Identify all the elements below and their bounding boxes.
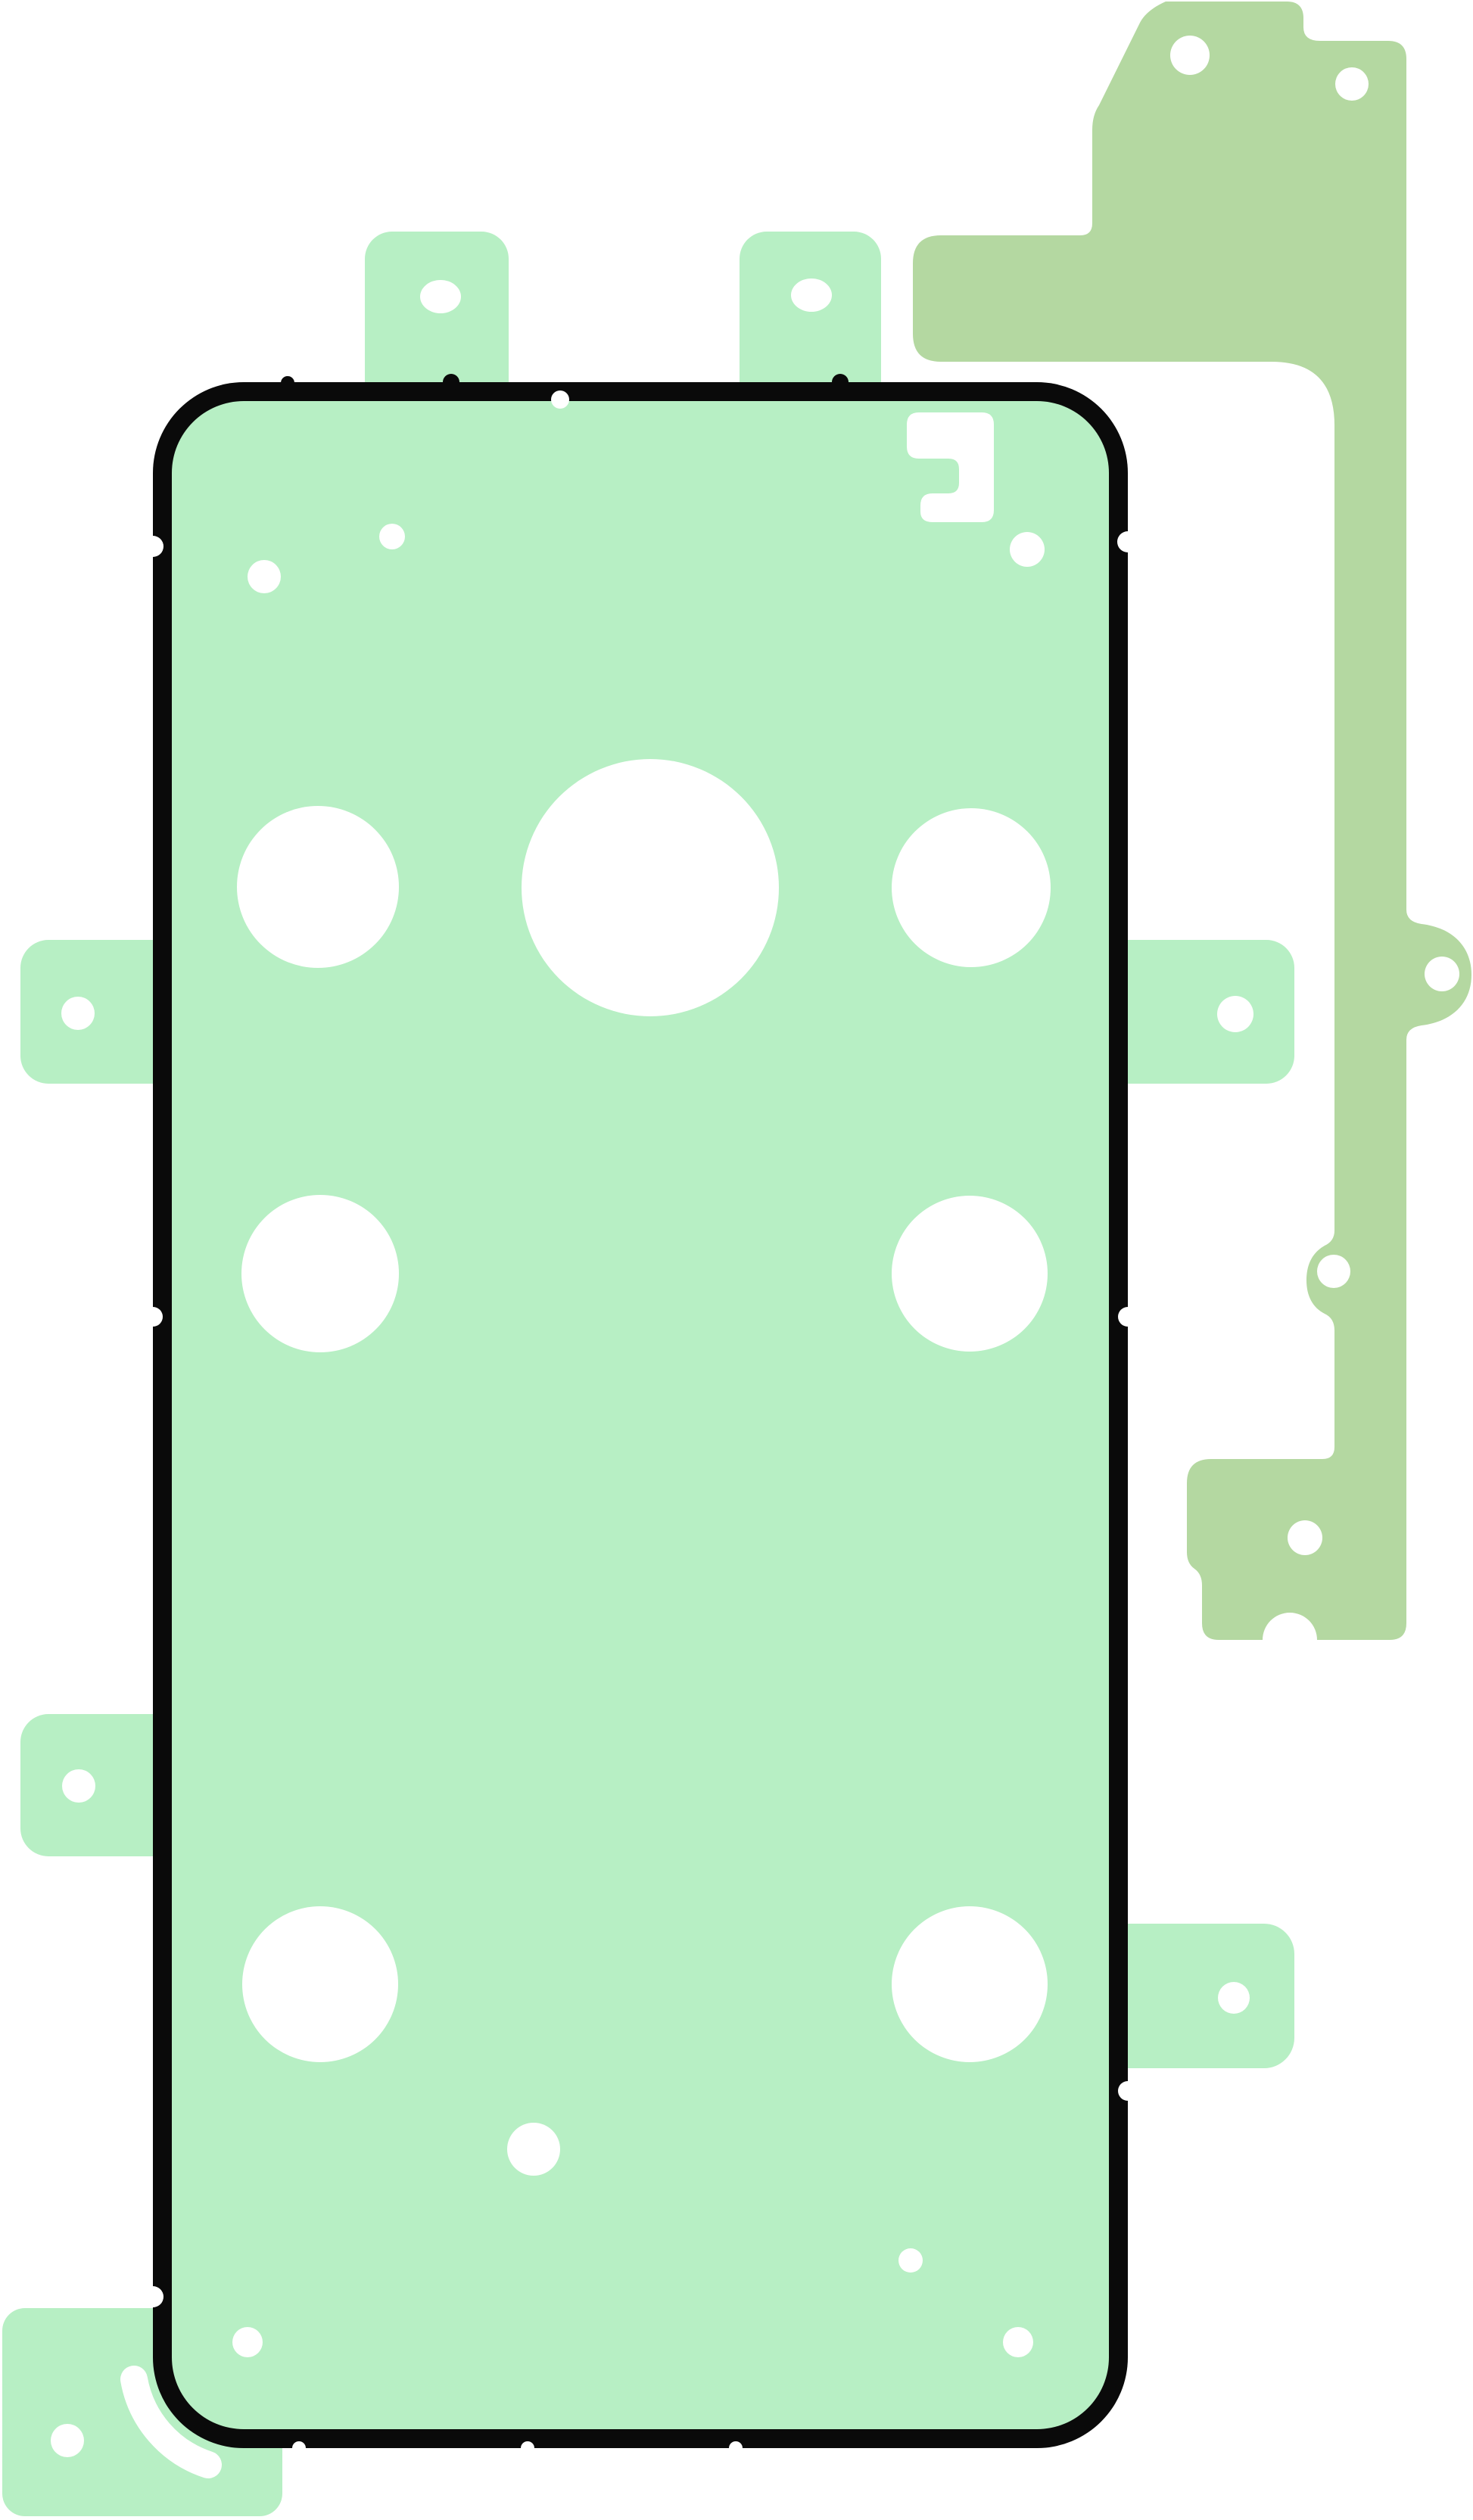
pull-tab-left-upper-hole (61, 997, 95, 1030)
screw-hole-cutout (248, 560, 281, 593)
strip-screw-hole (1317, 1255, 1350, 1288)
outline-bump (832, 374, 849, 390)
strip-screw-hole (1170, 36, 1210, 75)
outline-notch (1118, 2081, 1138, 2101)
backcover-adhesive-gasket-group (142, 374, 1138, 2455)
pull-tab-right-lower-hole (1218, 1982, 1250, 2014)
pull-tab-top-right-hole (791, 278, 832, 312)
screw-hole-cutout (379, 524, 405, 549)
outline-notch (551, 390, 569, 409)
pull-tab-right-upper-hole (1217, 996, 1253, 1032)
adhesive-sticker-product-image (0, 0, 1473, 2520)
camera-cutout (242, 1906, 398, 2062)
camera-cutout (522, 759, 779, 1016)
screw-hole-cutout (1003, 2327, 1033, 2357)
outline-bump (281, 376, 294, 390)
outline-notch (143, 1307, 163, 1327)
backcover-adhesive-gasket-body (172, 401, 1109, 2429)
pull-tab-left-lower-hole (62, 1769, 95, 1803)
outline-notch (521, 2441, 534, 2455)
camera-cutout (892, 808, 1051, 967)
camera-cutout (892, 1906, 1048, 2062)
corner-patch-hole (51, 2424, 84, 2457)
camera-cutout (237, 806, 399, 968)
camera-cutout (241, 1195, 399, 1352)
strip-screw-hole (1425, 957, 1459, 991)
screw-hole-cutout (232, 2327, 263, 2357)
outline-bump (443, 374, 459, 390)
camera-cutout (892, 1196, 1048, 1352)
outline-notch (1117, 531, 1138, 552)
screw-hole-cutout (898, 2248, 923, 2273)
outline-notch (292, 2441, 306, 2455)
screw-hole-cutout (507, 2123, 560, 2176)
pull-tab-top-left-hole (420, 280, 461, 313)
outline-notch (1118, 1307, 1138, 1327)
outline-notch (142, 536, 163, 557)
strip-screw-hole (1335, 67, 1369, 101)
strip-screw-hole (1288, 1520, 1322, 1555)
screw-hole-cutout (1010, 532, 1045, 567)
product-illustration (0, 0, 1473, 2520)
outline-notch (729, 2441, 743, 2455)
outline-notch (142, 2286, 163, 2307)
